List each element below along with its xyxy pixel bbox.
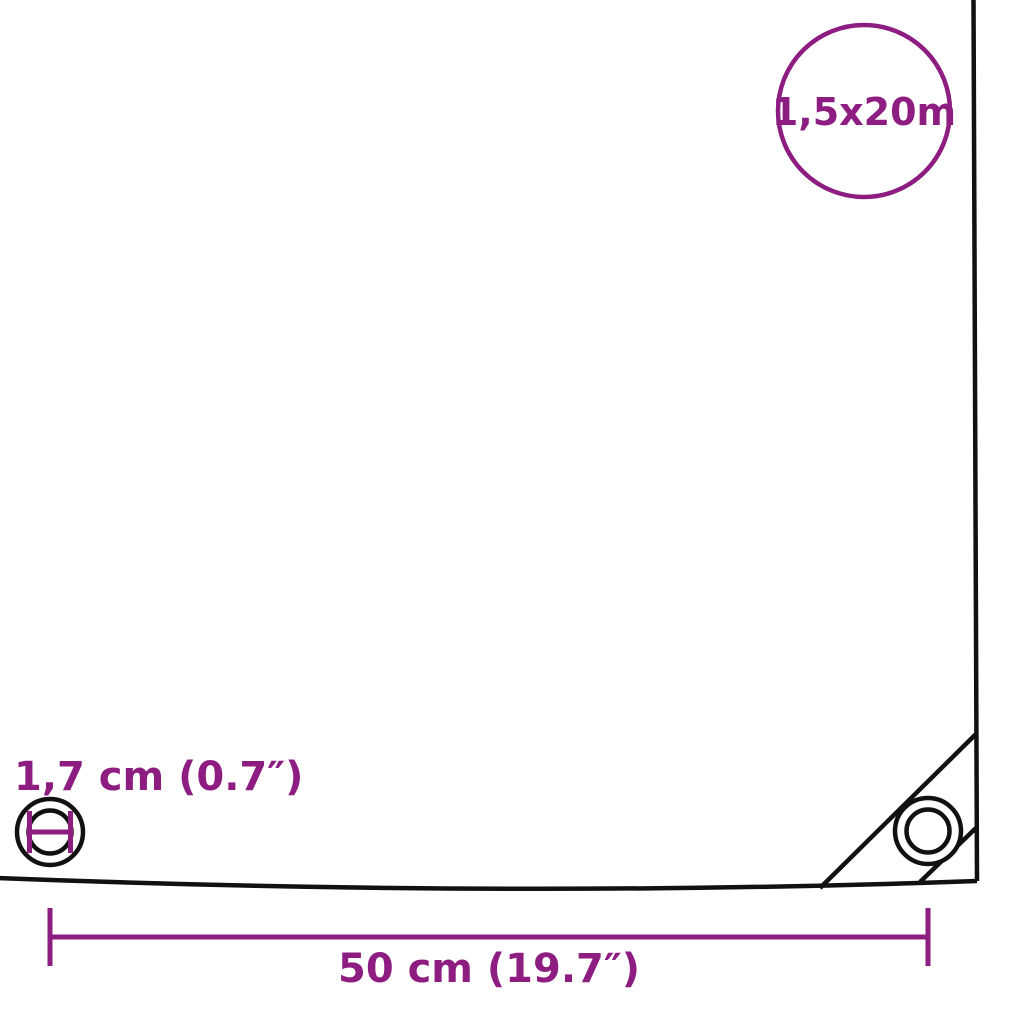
- corner-grommet-icon: [895, 798, 961, 864]
- tarp-right-edge: [974, 0, 978, 881]
- grommet-spacing-label: 50 cm (19.7″): [338, 946, 640, 992]
- size-badge-label: 1,5x20m: [772, 90, 956, 134]
- product-dimension-diagram: 1,5x20m 1,7 cm (0.7″) 50 cm (19.7″): [0, 0, 1024, 1024]
- grommet-diameter-label: 1,7 cm (0.7″): [14, 754, 303, 800]
- diagram-canvas: 1,5x20m 1,7 cm (0.7″) 50 cm (19.7″): [0, 0, 1024, 1024]
